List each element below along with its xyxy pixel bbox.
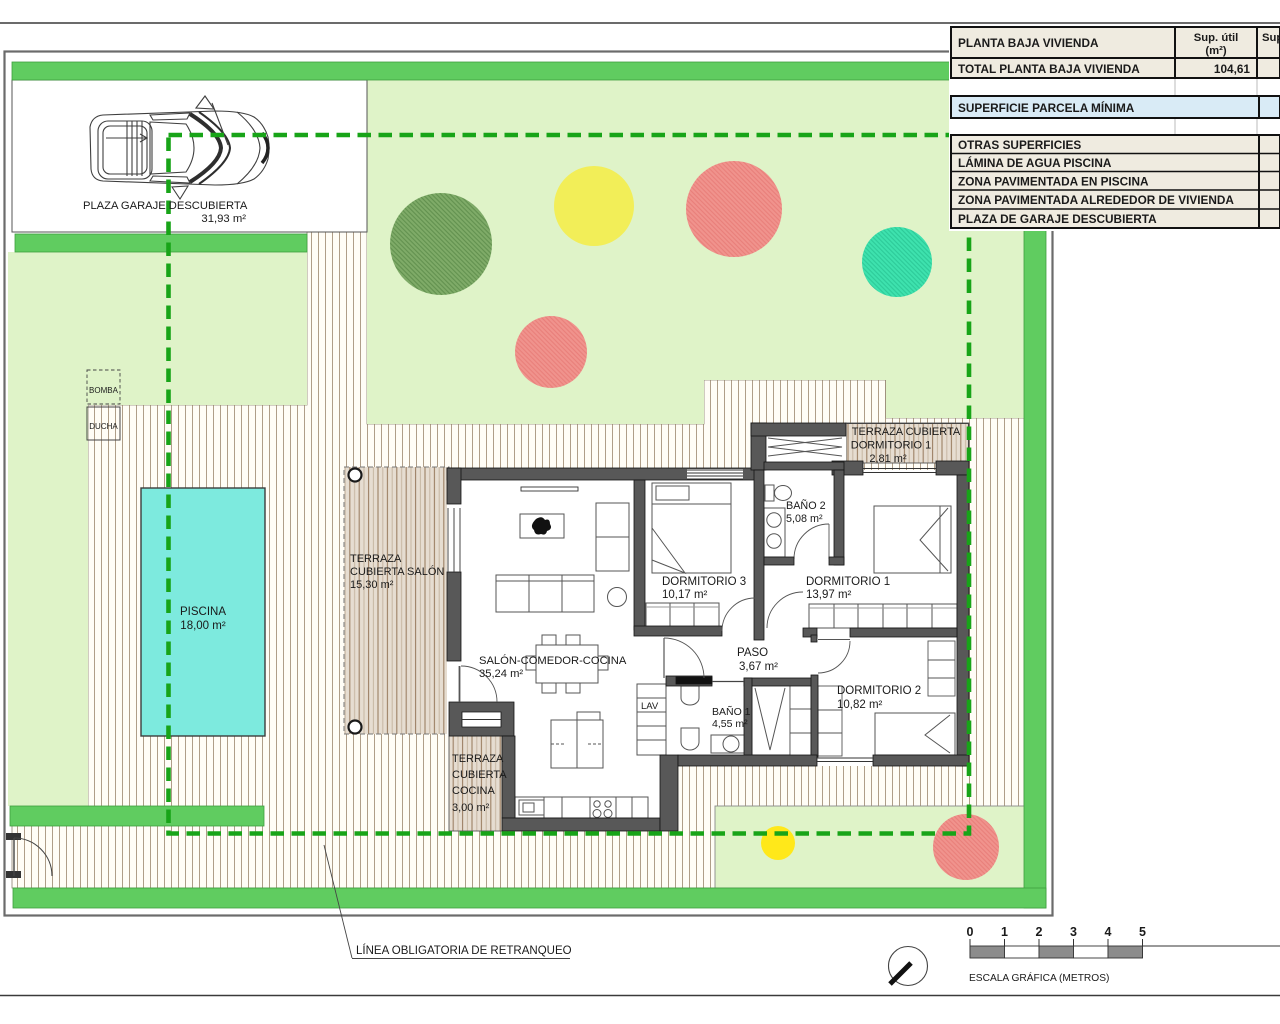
svg-text:BAÑO 1: BAÑO 1 [712,705,751,718]
svg-text:PLAZA DE GARAJE DESCUBIERTA: PLAZA DE GARAJE DESCUBIERTA [958,212,1157,226]
svg-text:3,00 m²: 3,00 m² [452,802,490,814]
svg-text:5: 5 [1139,925,1146,939]
svg-text:5,08 m²: 5,08 m² [786,513,823,525]
svg-text:3,67 m²: 3,67 m² [739,661,778,673]
svg-text:31,93 m²: 31,93 m² [201,213,246,225]
svg-text:Sup. útil: Sup. útil [1194,32,1239,44]
svg-text:CUBIERTA: CUBIERTA [452,769,507,781]
svg-text:PLAZA GARAJE DESCUBIERTA: PLAZA GARAJE DESCUBIERTA [83,200,248,212]
svg-text:CUBIERTA SALÓN: CUBIERTA SALÓN [350,565,444,578]
svg-text:1: 1 [1001,925,1008,939]
svg-text:LÁMINA DE AGUA PISCINA: LÁMINA DE AGUA PISCINA [958,156,1112,170]
svg-text:2,81 m²: 2,81 m² [869,453,907,465]
svg-text:4,55 m²: 4,55 m² [712,718,748,730]
svg-text:13,97 m²: 13,97 m² [806,589,852,601]
svg-text:104,61: 104,61 [1214,62,1251,76]
svg-text:COCINA: COCINA [452,785,495,797]
svg-text:TERRAZA: TERRAZA [452,753,504,765]
svg-text:PISCINA: PISCINA [180,606,226,618]
svg-text:35,24 m²: 35,24 m² [479,668,523,680]
svg-text:ESCALA GRÁFICA (METROS): ESCALA GRÁFICA (METROS) [969,971,1109,984]
svg-text:DUCHA: DUCHA [89,422,118,431]
svg-text:BOMBA: BOMBA [89,386,119,395]
svg-text:(m²): (m²) [1205,45,1227,57]
svg-text:LÍNEA OBLIGATORIA DE RETRANQUE: LÍNEA OBLIGATORIA DE RETRANQUEO [356,944,572,957]
svg-text:DORMITORIO 3: DORMITORIO 3 [662,576,746,588]
svg-text:3: 3 [1070,925,1077,939]
svg-text:DORMITORIO 2: DORMITORIO 2 [837,685,921,697]
svg-text:DORMITORIO 1: DORMITORIO 1 [851,440,931,452]
svg-text:TERRAZA CUBIERTA: TERRAZA CUBIERTA [852,426,961,438]
svg-text:BAÑO 2: BAÑO 2 [786,499,826,512]
svg-text:TERRAZA: TERRAZA [350,553,402,565]
svg-text:PLANTA BAJA VIVIENDA: PLANTA BAJA VIVIENDA [958,36,1099,50]
svg-text:15,30 m²: 15,30 m² [350,579,394,591]
svg-text:LAV: LAV [641,701,659,712]
svg-text:OTRAS SUPERFICIES: OTRAS SUPERFICIES [958,138,1081,152]
svg-text:Sup. co: Sup. co [1262,32,1280,44]
svg-text:SALÓN-COMEDOR-COCINA: SALÓN-COMEDOR-COCINA [479,654,627,667]
svg-text:18,00 m²: 18,00 m² [180,620,226,632]
svg-text:DORMITORIO 1: DORMITORIO 1 [806,576,890,588]
svg-text:ZONA PAVIMENTADA EN PISCINA: ZONA PAVIMENTADA EN PISCINA [958,175,1149,189]
svg-text:4: 4 [1105,925,1112,939]
svg-text:PASO: PASO [737,647,768,659]
svg-text:10,17 m²: 10,17 m² [662,589,708,601]
svg-text:TOTAL PLANTA BAJA VIVIENDA: TOTAL PLANTA BAJA VIVIENDA [958,62,1140,76]
svg-text:ZONA PAVIMENTADA ALREDEDOR DE: ZONA PAVIMENTADA ALREDEDOR DE VIVIENDA [958,193,1234,207]
svg-text:SUPERFICIE PARCELA MÍNIMA: SUPERFICIE PARCELA MÍNIMA [958,101,1135,115]
svg-text:2: 2 [1036,925,1043,939]
svg-text:0: 0 [967,925,974,939]
svg-text:10,82 m²: 10,82 m² [837,699,883,711]
